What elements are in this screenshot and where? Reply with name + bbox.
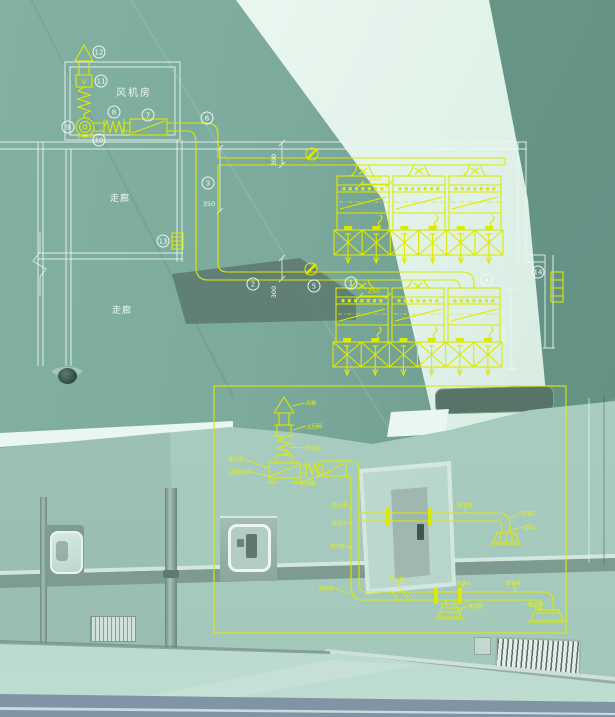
detail-label: 送风管 bbox=[319, 585, 334, 592]
filter-cell bbox=[399, 187, 402, 190]
detail-label: 止回阀 bbox=[307, 423, 322, 430]
filter-cell bbox=[485, 299, 488, 302]
filter-cell bbox=[349, 187, 352, 190]
filter-cell bbox=[411, 187, 414, 190]
detail-drawing: 风帽止回阀软接头排风机减震吊架防火阀防火阀软接头排风管调节阀软接头送风口送风管防… bbox=[214, 386, 566, 633]
filter-cell bbox=[467, 187, 470, 190]
detail-label: 排风管 bbox=[330, 543, 345, 550]
airflow-arrow bbox=[400, 345, 406, 375]
filter-cell bbox=[486, 187, 489, 190]
filter-cell bbox=[405, 187, 408, 190]
callout-number: 3 bbox=[206, 179, 210, 187]
filter-cell bbox=[410, 299, 413, 302]
filter-cell bbox=[429, 299, 432, 302]
dimension-text: 250 bbox=[368, 287, 380, 295]
dim-250-lines bbox=[360, 184, 389, 296]
detail-label: 防火阀 bbox=[389, 576, 404, 583]
airflow-arrow bbox=[372, 345, 378, 375]
detail-label: 防火阀 bbox=[332, 502, 347, 509]
filter-cell bbox=[460, 299, 463, 302]
detail-label: 送风口 bbox=[523, 524, 538, 531]
flange bbox=[434, 588, 438, 604]
airflow-arrow bbox=[486, 233, 492, 263]
airflow-arrow bbox=[344, 345, 350, 375]
stack-damper bbox=[277, 425, 291, 436]
cad-overlay: V bbox=[0, 0, 615, 717]
airflow-arrow bbox=[401, 233, 407, 263]
filter-cell bbox=[479, 299, 482, 302]
filter-cell bbox=[354, 299, 357, 302]
dimension-text: 2350 bbox=[500, 326, 508, 343]
detail-label: 散流器 bbox=[528, 601, 543, 608]
filter-cell bbox=[360, 299, 363, 302]
callout-number: 7 bbox=[146, 111, 150, 119]
dimension-text: 350 bbox=[203, 200, 215, 208]
filter-cell bbox=[430, 187, 433, 190]
detail-labels: 风帽止回阀软接头排风机减震吊架防火阀防火阀软接头排风管调节阀软接头送风口送风管防… bbox=[228, 400, 546, 611]
valve-letter: V bbox=[82, 78, 87, 86]
filter-cell bbox=[423, 299, 426, 302]
filter-cell bbox=[417, 187, 420, 190]
filter-cell bbox=[404, 299, 407, 302]
filter-cell bbox=[355, 187, 358, 190]
break-line bbox=[33, 232, 46, 296]
leader-line bbox=[291, 447, 305, 448]
filter-cell bbox=[373, 299, 376, 302]
room-label-fan-room: 风机房 bbox=[116, 86, 152, 99]
callout-number: 13 bbox=[159, 237, 168, 245]
leader-line bbox=[507, 527, 522, 531]
drain-trap bbox=[377, 327, 381, 339]
leader-line bbox=[511, 513, 520, 518]
detail-label: 风帽 bbox=[306, 400, 316, 407]
plan-annotations: 风机房 走廊走廊 3503003002350250250 12119108763… bbox=[62, 46, 544, 342]
detail-label: 排风机 bbox=[228, 456, 243, 463]
flange bbox=[458, 588, 462, 604]
dimension-ticks bbox=[217, 140, 514, 372]
callout-number: 11 bbox=[97, 77, 106, 85]
airflow-arrow bbox=[458, 233, 464, 263]
cleanroom-overlay-screenshot: V bbox=[0, 0, 615, 717]
callout-number: 5 bbox=[312, 282, 316, 290]
filter-cell bbox=[380, 187, 383, 190]
filter-cell bbox=[491, 299, 494, 302]
callout-number: 14 bbox=[534, 268, 543, 276]
detail-label: 调节阀 bbox=[505, 580, 520, 587]
callout-number: 2 bbox=[251, 280, 255, 288]
filter-cell bbox=[455, 187, 458, 190]
airflow-arrow bbox=[485, 345, 491, 375]
callout-number: 12 bbox=[95, 48, 104, 56]
exhaust-fan bbox=[76, 118, 94, 136]
drain-trap bbox=[378, 215, 382, 227]
flange bbox=[386, 508, 390, 525]
airflow-arrow bbox=[429, 345, 435, 375]
detail-label: 软接头 bbox=[332, 520, 347, 527]
filter-cell bbox=[343, 187, 346, 190]
airflow-arrow bbox=[457, 345, 463, 375]
filter-cell bbox=[436, 187, 439, 190]
callout-number: 6 bbox=[205, 114, 210, 122]
filter-cell bbox=[473, 187, 476, 190]
filter-cell bbox=[398, 299, 401, 302]
drain-trap bbox=[490, 215, 494, 227]
detail-label: 软接头 bbox=[306, 445, 321, 452]
branch-drop bbox=[463, 165, 487, 176]
leader-line bbox=[244, 459, 268, 468]
filter-units bbox=[333, 165, 503, 375]
detail-label: 散流器 bbox=[468, 603, 483, 610]
filter-cell bbox=[454, 299, 457, 302]
callout-number: 10 bbox=[95, 136, 104, 144]
detail-label: 防火阀 bbox=[300, 480, 315, 487]
filter-cell bbox=[492, 187, 495, 190]
room-label-corridor: 走廊 bbox=[112, 304, 132, 316]
branch-drop bbox=[407, 165, 431, 176]
dimension-text: 250 bbox=[369, 175, 381, 183]
callout-number: 9 bbox=[66, 123, 70, 131]
filter-cell bbox=[361, 187, 364, 190]
filter-cell bbox=[416, 299, 419, 302]
detail-label: 软接头 bbox=[521, 510, 536, 517]
plan-accessories bbox=[172, 148, 563, 302]
filter-cell bbox=[368, 187, 371, 190]
filter-cell bbox=[374, 187, 377, 190]
filter-cell bbox=[466, 299, 469, 302]
detail-label: 调节阀 bbox=[457, 502, 472, 509]
drain-trap bbox=[489, 327, 493, 339]
filter-cell bbox=[472, 299, 475, 302]
room-label-corridor: 走廊 bbox=[110, 192, 130, 204]
filter-cell bbox=[367, 299, 370, 302]
leader-line bbox=[335, 588, 349, 594]
airflow-arrow bbox=[373, 233, 379, 263]
leader-line bbox=[293, 426, 306, 430]
filter-cell bbox=[379, 299, 382, 302]
airflow-arrow bbox=[345, 233, 351, 263]
filter-cell bbox=[461, 187, 464, 190]
filter-cell bbox=[435, 299, 438, 302]
detail-label: 软接头 bbox=[456, 580, 471, 587]
main-ducts bbox=[167, 123, 505, 288]
filter-cell bbox=[342, 299, 345, 302]
flange bbox=[428, 508, 432, 525]
dimension-text: 300 bbox=[270, 154, 278, 166]
leader-line bbox=[292, 403, 305, 406]
airflow-arrow bbox=[430, 233, 436, 263]
drain-trap bbox=[433, 327, 437, 339]
callout-number: 4 bbox=[485, 276, 490, 284]
filter-cell bbox=[424, 187, 427, 190]
drain-trap bbox=[434, 215, 438, 227]
detail-label: 减震吊架 bbox=[230, 469, 250, 476]
filter-cell bbox=[480, 187, 483, 190]
filter-cell bbox=[348, 299, 351, 302]
callout-number: 1 bbox=[349, 279, 353, 287]
callout-number: 8 bbox=[112, 108, 116, 116]
room-labels: 走廊走廊 bbox=[110, 192, 132, 316]
dimension-text: 300 bbox=[270, 286, 278, 298]
